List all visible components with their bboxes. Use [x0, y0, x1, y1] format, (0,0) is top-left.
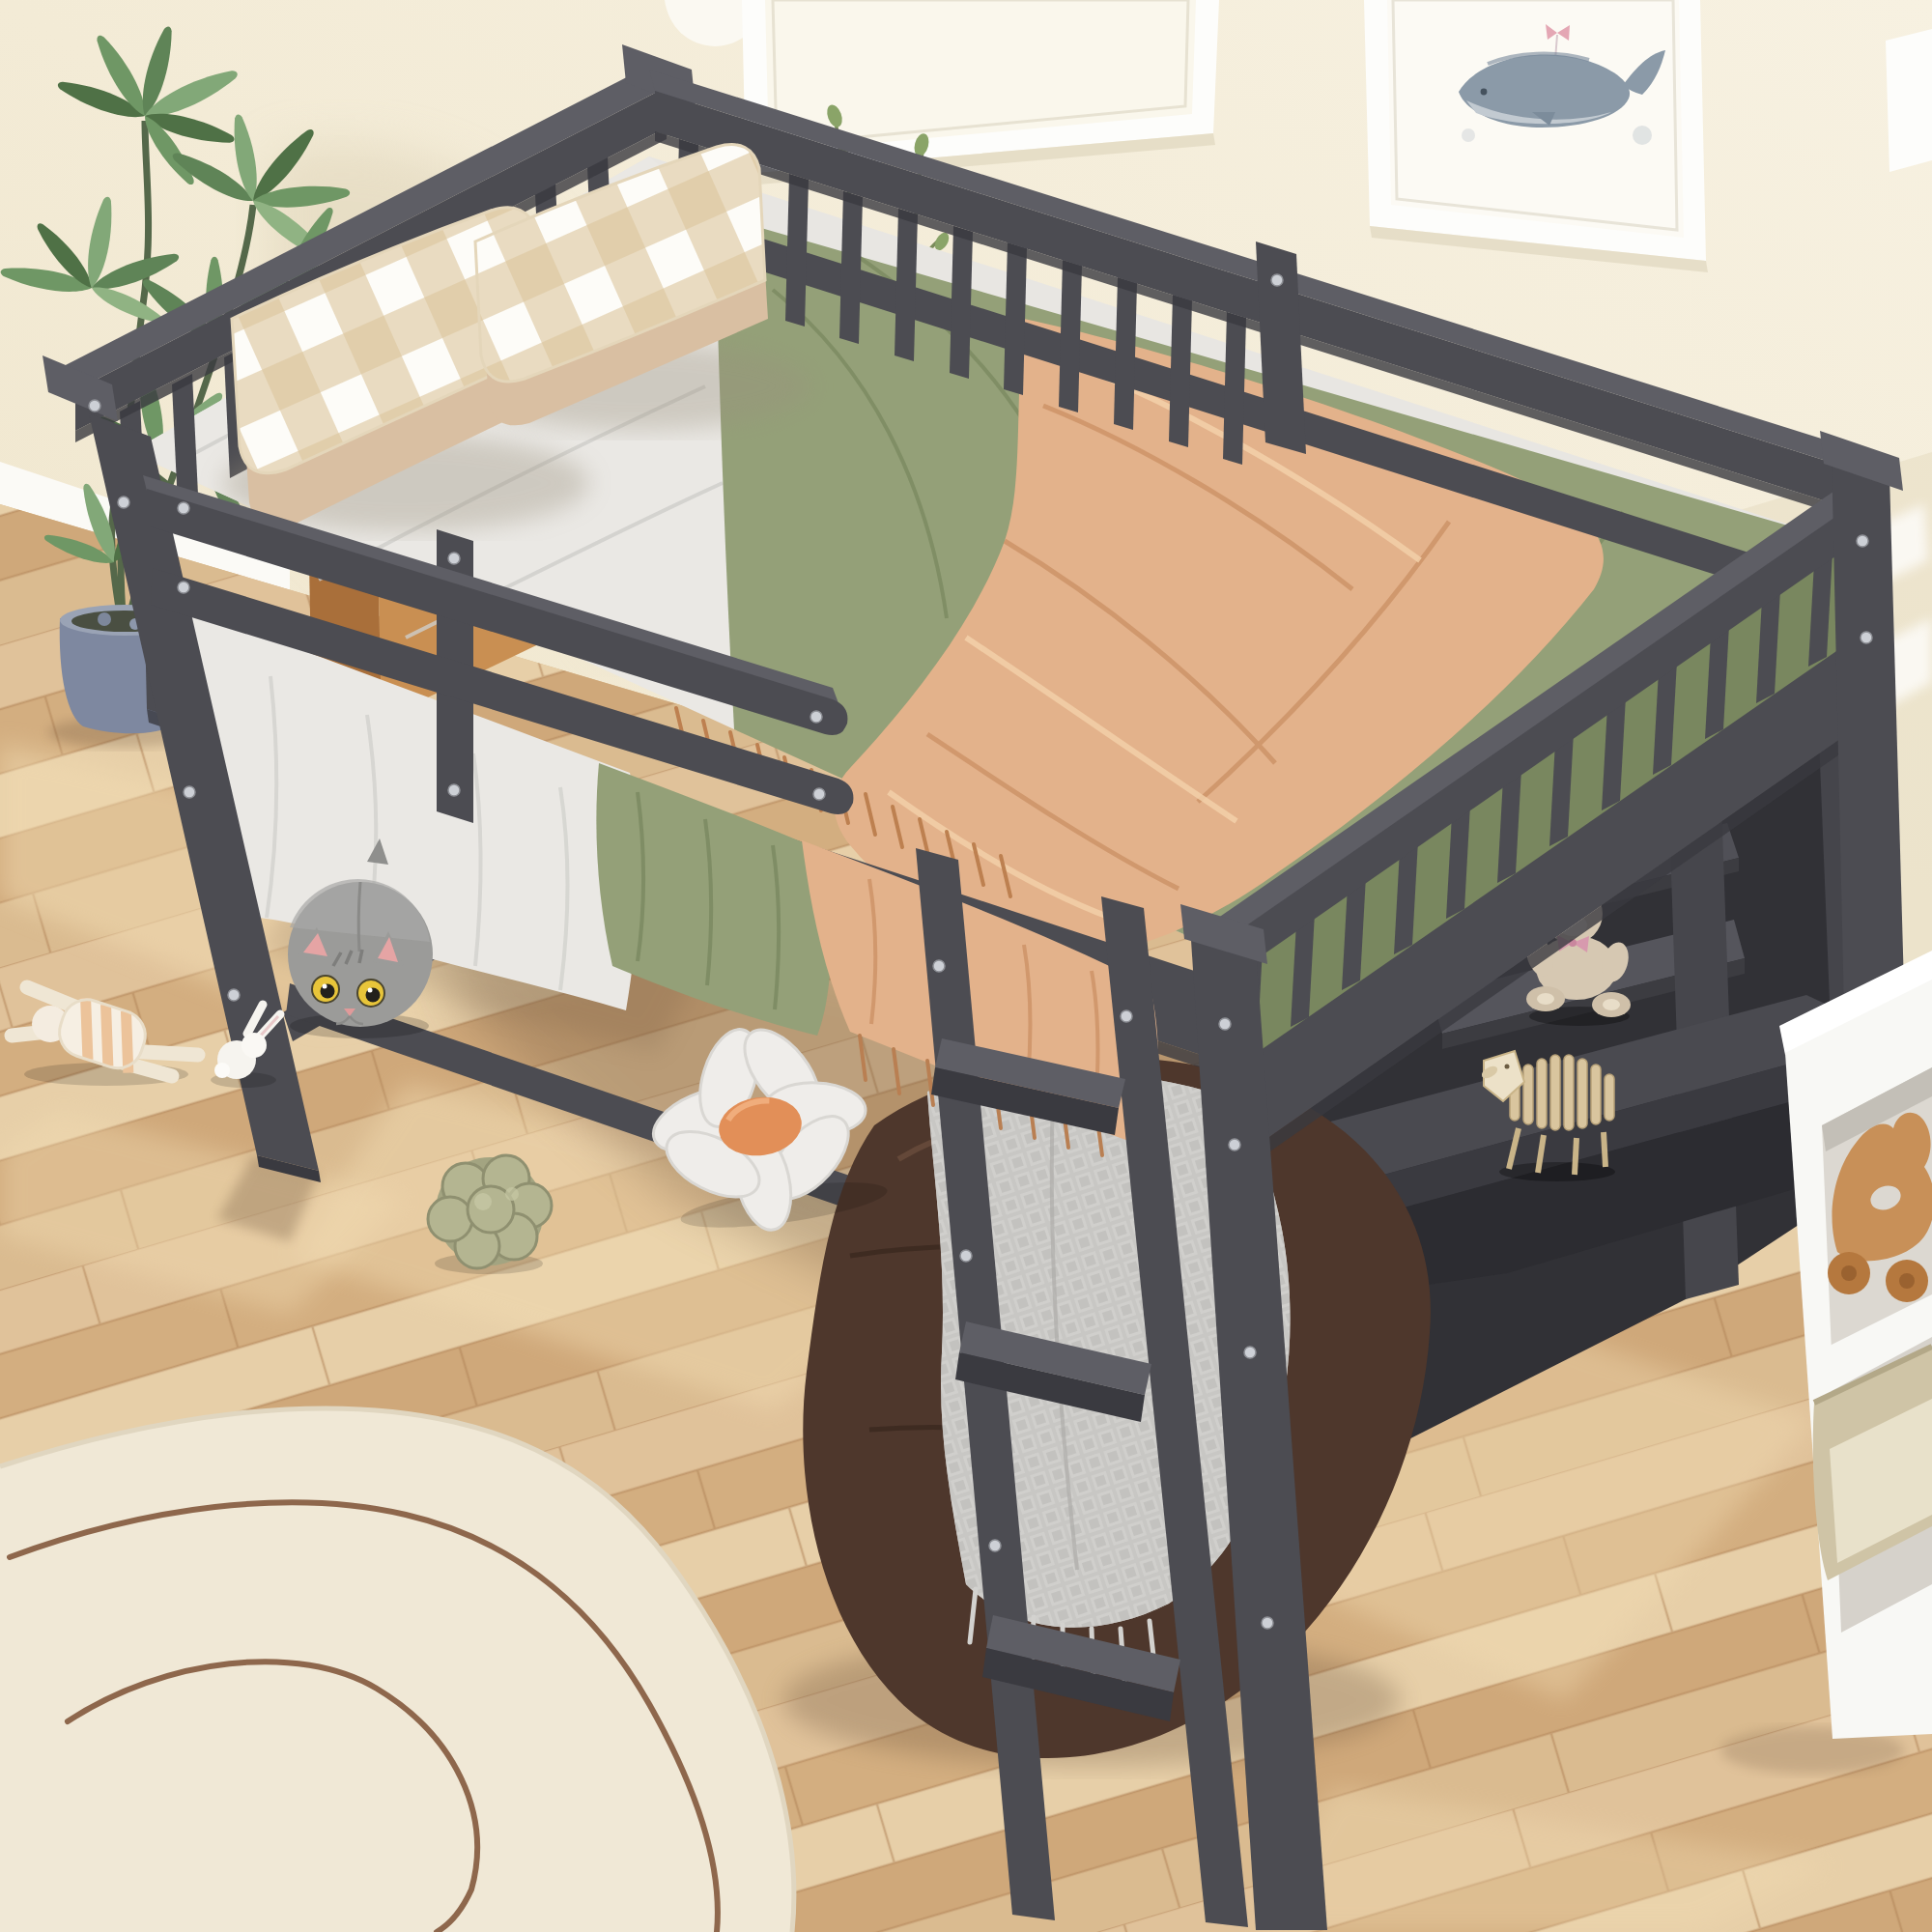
whale-frame [1364, 0, 1708, 272]
window-frame-edge [1886, 29, 1932, 172]
product-photo-loft-bed [0, 0, 1932, 1932]
room-scene [0, 0, 1932, 1932]
